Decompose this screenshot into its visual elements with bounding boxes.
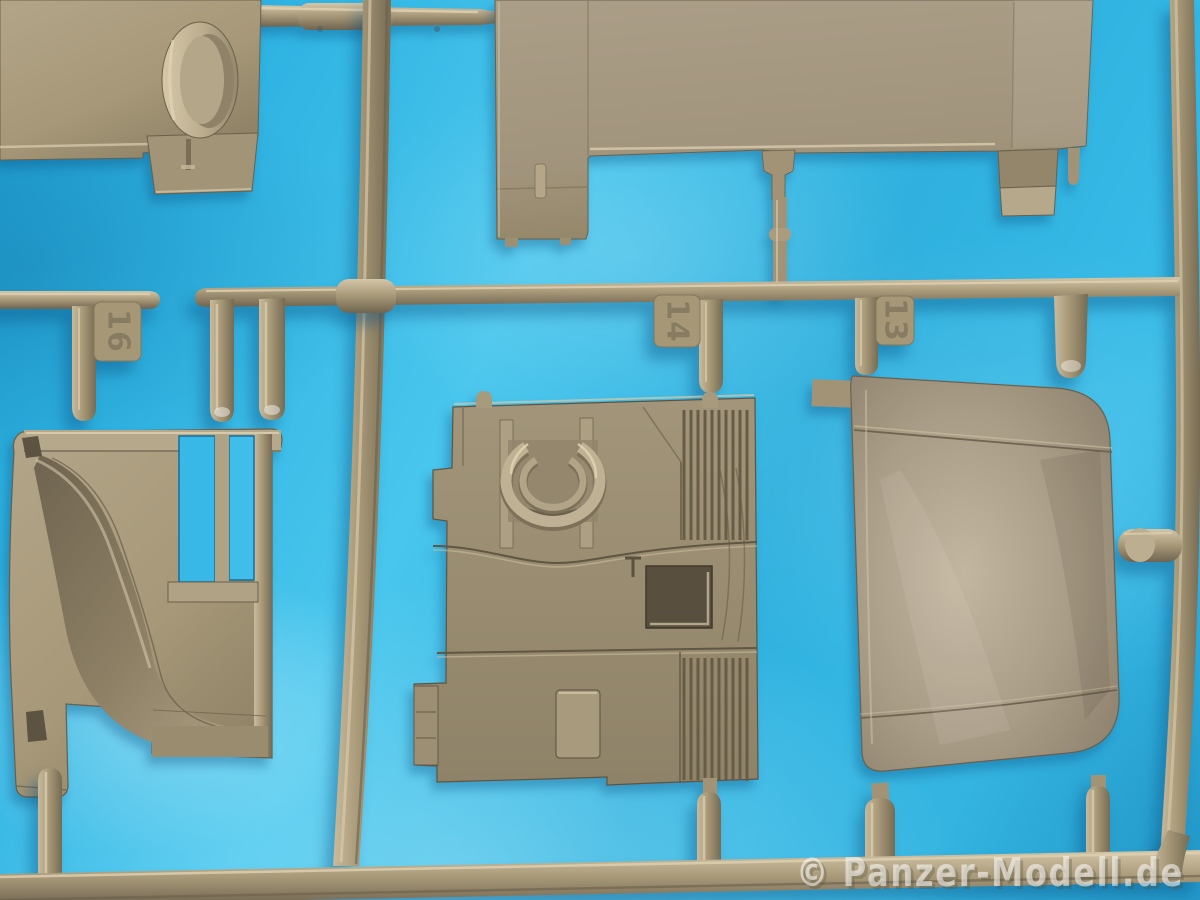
deck-sprue-stub [702,392,718,408]
sprue-drop-pin [210,299,234,422]
column-pin-detail [535,164,546,198]
drum-pedestal [147,133,258,194]
part-roof-panel-with-drum [0,0,261,194]
gate-tag-13: 13 13 [855,296,914,375]
deck-rect-opening [646,566,712,628]
panel-box-front [1000,186,1056,216]
part-side-panel [812,376,1120,771]
gate-tag-16: 16 16 [72,302,141,421]
deck-sprue-stub [476,391,492,408]
panel-gate-pin [773,197,787,295]
deck-hatch [556,690,600,758]
watermark-text: © Panzer-Modell.de [796,851,1184,896]
column-tab [560,238,571,245]
sprue-runner-vertical [333,0,391,866]
frame-opening [229,436,254,580]
panel-stub-pin [1068,148,1080,185]
gate-number-14: 14 [660,299,695,343]
sprue-drop-pin [259,298,285,420]
photo-model-kit-sprue: 16 16 14 14 13 13 [0,0,1200,900]
deck-side-tab [414,686,438,765]
sprue-pin [38,768,62,880]
panel-box-top [998,149,1058,188]
panel-left-stub [812,379,857,408]
part-upper-hull-panel [495,0,1093,295]
gate-number-16: 16 [101,309,136,353]
column-tab [505,238,518,247]
frame-opening [179,436,215,582]
part-fender-frame [9,429,282,797]
watermark: © Panzer-Modell.de © Panzer-Modell.de [796,851,1187,899]
gate-tag-14: 14 14 [654,295,723,393]
part-engine-deck [414,391,758,796]
gate-number-13: 13 [878,298,913,342]
panel-gate-block [762,150,795,199]
sprue-runner-right [1118,0,1200,858]
sprue-illustration: 16 16 14 14 13 13 [0,0,1200,900]
